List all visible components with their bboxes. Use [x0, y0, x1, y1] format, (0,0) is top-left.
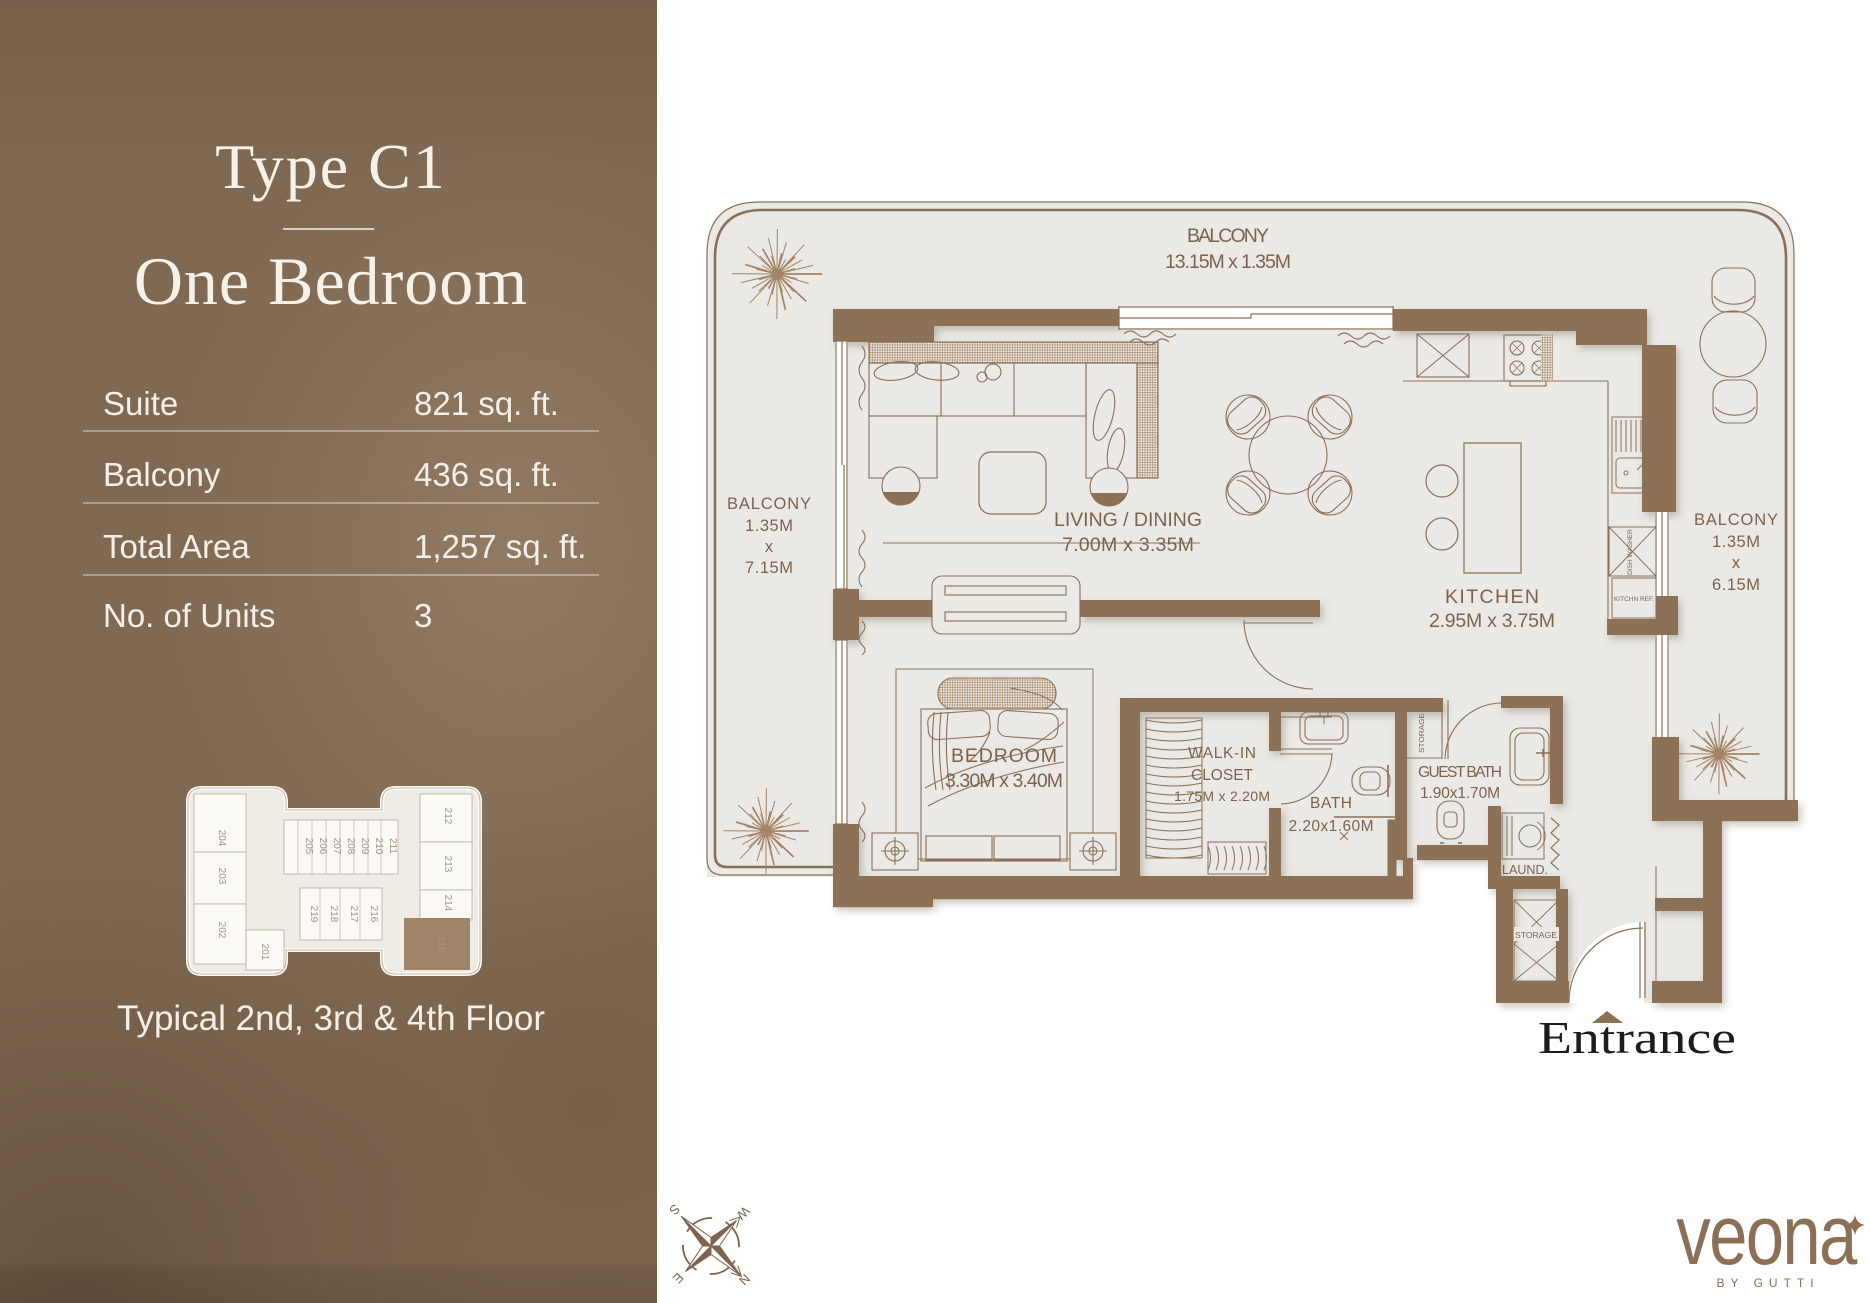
svg-text:KITCHEN: KITCHEN [1445, 586, 1539, 608]
svg-text:207: 207 [331, 838, 342, 855]
svg-text:x: x [1732, 554, 1741, 572]
svg-text:LIVING / DINING: LIVING / DINING [1054, 509, 1202, 531]
svg-text:One Bedroom: One Bedroom [134, 243, 528, 319]
svg-text:208: 208 [345, 838, 356, 855]
svg-text:219: 219 [308, 906, 319, 923]
svg-text:1,257 sq. ft.: 1,257 sq. ft. [414, 528, 586, 565]
svg-text:1.90x1.70M: 1.90x1.70M [1420, 785, 1500, 802]
svg-text:201: 201 [259, 944, 270, 961]
svg-text:2.95M x 3.75M: 2.95M x 3.75M [1429, 610, 1555, 632]
svg-text:436 sq. ft.: 436 sq. ft. [414, 456, 559, 493]
svg-text:3: 3 [414, 597, 432, 634]
svg-text:Typical 2nd, 3rd & 4th Floor: Typical 2nd, 3rd & 4th Floor [117, 999, 545, 1038]
svg-text:WALK-IN: WALK-IN [1188, 745, 1256, 762]
svg-text:205: 205 [303, 838, 314, 855]
svg-text:204: 204 [216, 830, 227, 847]
svg-text:DISH WASHER: DISH WASHER [1627, 529, 1634, 575]
svg-text:Suite: Suite [103, 385, 178, 422]
svg-text:veona: veona [1676, 1189, 1857, 1283]
svg-text:Balcony: Balcony [103, 456, 221, 493]
svg-text:x: x [765, 538, 774, 556]
svg-text:212: 212 [442, 808, 453, 825]
svg-text:206: 206 [317, 838, 328, 855]
svg-text:STORAGE: STORAGE [1515, 930, 1557, 940]
svg-text:213: 213 [442, 856, 453, 873]
svg-text:6.15M: 6.15M [1712, 576, 1760, 594]
svg-text:LAUND.: LAUND. [1502, 863, 1548, 877]
svg-text:7.00M x 3.35M: 7.00M x 3.35M [1062, 534, 1194, 556]
svg-text:215: 215 [435, 936, 446, 953]
svg-text:Entrance: Entrance [1538, 1013, 1736, 1063]
svg-text:7.15M: 7.15M [745, 559, 793, 577]
svg-text:1.75M x 2.20M: 1.75M x 2.20M [1174, 788, 1270, 804]
svg-text:216: 216 [368, 906, 379, 923]
svg-text:1.35M: 1.35M [1712, 533, 1760, 551]
svg-text:BEDROOM: BEDROOM [951, 745, 1057, 767]
svg-text:CLOSET: CLOSET [1191, 767, 1254, 784]
svg-text:218: 218 [328, 906, 339, 923]
svg-text:13.15M x 1.35M: 13.15M x 1.35M [1165, 251, 1291, 273]
svg-text:214: 214 [442, 895, 453, 912]
svg-text:BALCONY: BALCONY [1187, 225, 1269, 247]
svg-text:217: 217 [348, 906, 359, 923]
svg-text:1.35M: 1.35M [745, 517, 793, 535]
svg-text:GUEST BATH: GUEST BATH [1418, 764, 1502, 781]
svg-text:BALCONY: BALCONY [1694, 511, 1778, 529]
svg-text:210: 210 [373, 838, 384, 855]
svg-text:BATH: BATH [1310, 795, 1352, 812]
svg-text:KITCHN REF.: KITCHN REF. [1614, 596, 1654, 603]
svg-text:2.20x1.60M: 2.20x1.60M [1289, 818, 1374, 835]
svg-text:Type C1: Type C1 [215, 131, 447, 202]
svg-text:211: 211 [387, 838, 398, 854]
svg-text:STORAGE: STORAGE [1419, 713, 1426, 753]
svg-text:821 sq. ft.: 821 sq. ft. [414, 385, 559, 422]
svg-text:202: 202 [216, 922, 227, 939]
svg-text:Total Area: Total Area [103, 528, 250, 565]
svg-text:209: 209 [359, 838, 370, 855]
svg-text:BALCONY: BALCONY [727, 495, 811, 513]
svg-text:BY GUTTI: BY GUTTI [1716, 1276, 1819, 1290]
svg-text:203: 203 [216, 868, 227, 885]
svg-text:3.30M x 3.40M: 3.30M x 3.40M [945, 770, 1063, 792]
svg-text:No. of Units: No. of Units [103, 597, 275, 634]
